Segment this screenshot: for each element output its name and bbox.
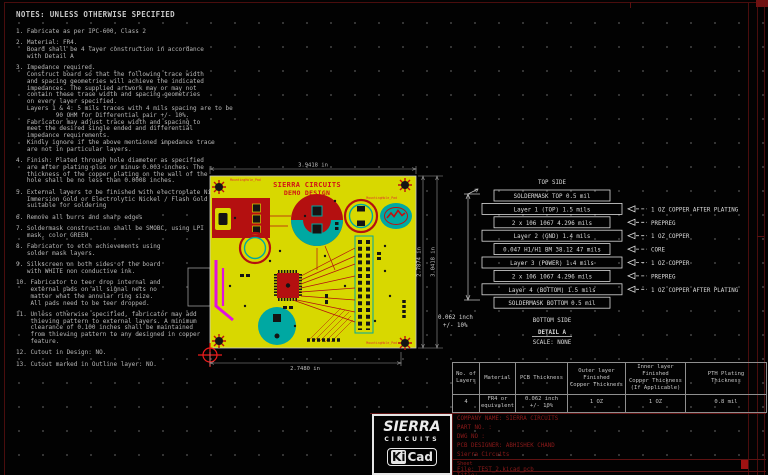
stackup-row: Layer 1 (TOP) 1.5 mils1 OZ COPPER AFTER … (482, 203, 739, 214)
spec-table-header: No. ofLayers (453, 363, 480, 395)
stackup-arrow-icon (628, 286, 635, 292)
dimension-bottom: 2.7480 in (290, 366, 320, 372)
kicad-cad-mark: Cad (406, 450, 433, 464)
spec-table-cell: 4 (453, 394, 480, 412)
scale-label: SCALE: NONE (533, 340, 572, 346)
title-block-divider-1 (452, 459, 766, 460)
stackup-row: 0.047 H1/H1 BM 38.12 47 milsCORE (494, 244, 665, 255)
stackup-row: 2 x 106 1067 4.296 milsPREPREG (494, 270, 676, 281)
logo-box: SIERRA CIRCUITS KiCad (372, 414, 452, 475)
sierra-circuits-label: CIRCUITS (374, 436, 450, 443)
note-item: 3. Impedance required. Construct board s… (16, 65, 234, 153)
stackup-arrow-icon (628, 246, 635, 252)
stackup-diagram: TOP SIDE SOLDERMASK TOP 0.5 milLayer 1 (… (430, 172, 768, 354)
spec-table-cell: 0.062 inch+/- 10% (516, 394, 568, 412)
spec-table-row: 4FR4 orequivalent0.062 inch+/- 10%1 OZ1 … (453, 394, 767, 412)
svg-text:2 x 106 1067 4.296 mils: 2 x 106 1067 4.296 mils (512, 274, 592, 280)
stackup-row: Layer 3 (POWER) 1.4 mils1 OZ COPPER (482, 257, 690, 268)
detail-a-label: DETAIL A (538, 330, 566, 336)
notes-title: NOTES: UNLESS OTHERWISE SPECIFIED (16, 10, 234, 19)
stackup-row: Layer 4 (BOTTOM) 1.5 mils1 OZ COPPER AFT… (482, 284, 739, 295)
spec-table-header: Outer layerFinishedCopper Thickness (568, 363, 626, 395)
pcb-drawing: MountingHole_Pad MountingHole_Pad Mounti… (185, 156, 451, 376)
title-block-designer: PCB DESIGNER: ABHISHEK CHAND (457, 443, 555, 449)
stackup-material-label: PREPREG (651, 274, 676, 280)
title-block-dwg-no: DWG NO : (457, 434, 485, 440)
stackup-arrow-icon (628, 260, 635, 266)
stackup-material-label: 1 OZ COPPER (651, 234, 690, 240)
stackup-thickness-dimension (464, 189, 480, 300)
stackup-row: Layer 2 (GND) 1.4 mils1 OZ COPPER (482, 230, 690, 241)
stackup-row: SOLDERMASK BOTTOM 0.5 mil (494, 297, 610, 308)
title-block-company: COMPANY NAME: SIERRA CIRCUITS (457, 416, 558, 422)
pcb-silkscreen-title-1: SIERRA CIRCUITS (273, 181, 341, 189)
pcb-silkscreen-title-2: DEMO DESIGN (284, 189, 330, 197)
title-block-firm: Sierra Circuits (457, 452, 509, 458)
spec-table-header: Material (480, 363, 516, 395)
stackup-material-label: 1 OZ COPPER AFTER PLATING (651, 288, 739, 294)
dimension-right-inner: 2.7874 in (417, 247, 423, 277)
stackup-row: 2 x 106 1067 4.296 milsPREPREG (494, 217, 676, 228)
dimension-top: 3.9418 in (298, 163, 328, 169)
title-block-top-line (370, 413, 766, 414)
stackup-bottom-side-label: BOTTOM SIDE (533, 318, 572, 324)
note-item: 1. Fabricate as per IPC-600, Class 2 (16, 29, 234, 36)
stackup-arrow-icon (628, 233, 635, 239)
stackup-arrow-icon (628, 206, 635, 212)
mounting-hole-label: MountingHole_Pad (230, 178, 261, 182)
svg-text:2 x 106 1067 4.296 mils: 2 x 106 1067 4.296 mils (512, 221, 592, 227)
kicad-ki-mark: Ki (391, 450, 406, 464)
spec-table-cell: 0.8 mil (686, 394, 767, 412)
title-block-part-no: PART NO. : (457, 425, 492, 431)
spec-table-cell: FR4 orequivalent (480, 394, 516, 412)
frame-corner-box (756, 0, 768, 7)
svg-text:0.047 H1/H1 BM 38.12 47 mils: 0.047 H1/H1 BM 38.12 47 mils (503, 248, 601, 254)
frame-zone-tick-top (630, 2, 631, 8)
spec-table: No. ofLayersMaterialPCB ThicknessOuter l… (452, 362, 767, 413)
svg-text:Layer 2 (GND) 1.4 mils: Layer 2 (GND) 1.4 mils (514, 234, 591, 240)
stackup-thickness-tolerance: +/- 10% (443, 323, 468, 329)
spec-table-cell: 1 OZ (626, 394, 686, 412)
mounting-hole-label: MountingHole_Pad (366, 341, 397, 345)
sierra-logo: SIERRA (374, 419, 450, 435)
stackup-arrow-icon (628, 273, 635, 279)
spec-table-cell: 1 OZ (568, 394, 626, 412)
stackup-material-label: 1 OZ COPPER AFTER PLATING (651, 207, 739, 213)
stackup-material-label: 1 OZ COPPER (651, 261, 690, 267)
svg-text:SOLDERMASK BOTTOM 0.5 mil: SOLDERMASK BOTTOM 0.5 mil (508, 301, 595, 307)
stackup-material-label: CORE (651, 248, 665, 254)
svg-text:SOLDERMASK TOP 0.5 mil: SOLDERMASK TOP 0.5 mil (514, 194, 591, 200)
stackup-rows: SOLDERMASK TOP 0.5 milLayer 1 (TOP) 1.5 … (482, 190, 739, 308)
stackup-thickness-value: 0.062 inch (438, 315, 473, 321)
kicad-logo: KiCad (387, 448, 437, 466)
spec-table-header: PCB Thickness (516, 363, 568, 395)
stackup-row: SOLDERMASK TOP 0.5 mil (494, 190, 610, 201)
mounting-hole-label: MountingHole_Pad (366, 196, 397, 200)
spec-table-header: PTH PlatingThickness (686, 363, 767, 395)
stackup-top-side-label: TOP SIDE (538, 180, 566, 186)
svg-text:Layer 4 (BOTTOM) 1.5 mils: Layer 4 (BOTTOM) 1.5 mils (508, 288, 595, 294)
note-item: 2. Material: FR4. Board shall be 4 layer… (16, 40, 234, 60)
svg-text:Layer 3 (POWER) 1.4 mils: Layer 3 (POWER) 1.4 mils (510, 261, 594, 267)
stackup-arrow-icon (628, 219, 635, 225)
fabrication-drawing-sheet: NOTES: UNLESS OTHERWISE SPECIFIED 1. Fab… (0, 0, 768, 475)
stackup-material-label: PREPREG (651, 221, 676, 227)
sheet-number-box (741, 460, 748, 469)
svg-text:Layer 1 (TOP) 1.5 mils: Layer 1 (TOP) 1.5 mils (514, 207, 591, 213)
spec-table-header: Inner layer FinishedCopper Thickness(If … (626, 363, 686, 395)
edge-connector-outline (188, 268, 210, 306)
title-block-left-line (452, 413, 453, 475)
